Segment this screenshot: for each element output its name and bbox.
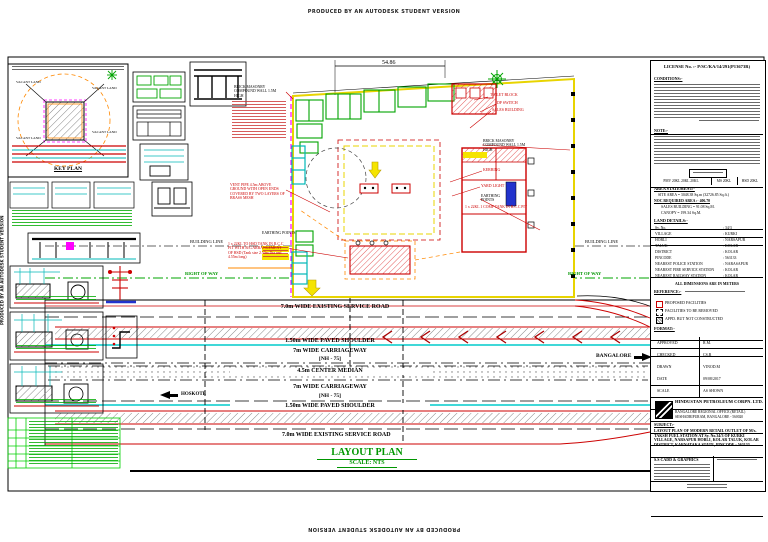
legend-item-removed: FACILITIES TO BE REMOVED [665, 309, 718, 313]
legend-item-proposed: PROPOSED FACILITIES [665, 301, 706, 305]
ann-hsd-tank: 1 x 22KL TO HSD TANK IN R.C.C PIT WITH B… [228, 242, 286, 259]
dims-note: ALL DIMENSIONS ARE IN METERS [651, 282, 763, 286]
drawing-sheet: PRODUCED BY AN AUTODESK STUDENT VERSION … [0, 0, 768, 542]
ann-ms-tank: 1 x 22KL 1 COMP TANK IN R.C.C PIT [465, 205, 527, 209]
tank1-caption [16, 296, 96, 301]
key-plan-caption: KEY PLAN [38, 166, 98, 172]
format-row-label-0: APPROVED [657, 341, 678, 345]
ann-dp-switch: DP SWITCH [497, 101, 518, 105]
paved-shoulder-label-bottom: 1.50m WIDE PAVED SHOULDER [230, 403, 430, 410]
vacant-land-label-4: VACANT LAND [92, 130, 117, 134]
format-row-value-3: 09/08/2017 [703, 377, 721, 381]
hoskote-label: HOSKOTE [181, 392, 206, 398]
ann-yard-light: YARD LIGHT [481, 184, 504, 188]
electrical-note-red [232, 101, 286, 139]
land-row-label-1: VILLAGE [655, 232, 671, 236]
ann-toilet: TOILET BLOCK [490, 93, 518, 97]
vent-mast-detail [109, 266, 132, 300]
service-road-label-top: 7.0m WIDE EXISTING SERVICE ROAD [235, 304, 435, 311]
nh-label-bottom: [NH - 75] [230, 393, 430, 399]
tank2-caption [16, 345, 96, 350]
right-of-way-right: RIGHT OF WAY [568, 271, 601, 276]
format-row-value-2: VINOD.M [703, 365, 720, 369]
ann-vent: VENT PIPE 4.5m ABOVE GROUND WITH OPEN EN… [230, 183, 286, 200]
legend-item-appd: APPD. BUT NOT CONSTRUCTED [665, 317, 723, 321]
ann-sales-building: SALES BUILDING [492, 108, 524, 112]
note-text [654, 136, 760, 164]
service-road-label-bottom: 7.0m WIDE EXISTING SERVICE ROAD [282, 432, 391, 439]
land-row-value-4: : KOLAR [723, 250, 738, 254]
detail-notes-green [12, 210, 132, 226]
land-details-heading: LAND DETAILS:- [654, 219, 688, 224]
land-row-label-7: NEAREST FIRE SERVICE STATION [655, 268, 714, 272]
paved-shoulder-label-top: 1.50m WIDE PAVED SHOULDER [230, 338, 430, 345]
sheet-divider [130, 470, 650, 472]
land-row-label-8: NEAREST RAILWAY STATION [655, 274, 706, 278]
building-line-left: BUILDING LINE [190, 239, 223, 244]
reference-heading: REFERENCE:- [654, 290, 681, 295]
conditions-text [654, 84, 760, 118]
title-block: LICENSE No. :- P/SC/KA/14/291(P13673R) C… [650, 60, 766, 492]
tank-cell-3: HSD 20KL [737, 179, 763, 183]
highlight-1 [463, 152, 487, 158]
land-row-value-2: : NARSAPUR [723, 238, 745, 242]
subject-heading: SUBJECT:- [654, 423, 674, 428]
bangalore-label: BANGALORE [596, 353, 631, 359]
ann-kerbing: KERBING [483, 168, 500, 172]
building-line-right: BUILDING LINE [585, 239, 618, 244]
reference-text [685, 291, 745, 294]
area-statement-heading: AREA STATEMENT:- [654, 187, 695, 192]
land-row-value-5: : 563133 [723, 256, 736, 260]
vacant-land-label-3: VACANT LAND [16, 136, 41, 140]
vacant-land-label-1: VACANT LAND [16, 80, 41, 84]
layout-plan-scale: SCALE: NTS [337, 460, 397, 468]
toilet-block [452, 84, 496, 114]
format-row-label-4: SCALE [657, 389, 669, 393]
layout-plan-title: LAYOUT PLAN [317, 447, 417, 460]
canopy-area: CANOPY = 199.34 Sq.M. [661, 211, 701, 215]
company-name: HINDUSTAN PETROLEUM CORPN. LTD. [675, 399, 763, 404]
noc-area-value: NOC REQUIRED AREA :- 406.70 [654, 199, 710, 203]
land-row-value-3: : KOLAR [723, 244, 738, 248]
ann-wall-left: BRICK MASONRY COMPOUND WALL 1.5M HIGH [234, 85, 286, 98]
consultant-address [654, 464, 710, 480]
company-address: SESHADRIPURAM, BANGALORE - 560020 [675, 415, 743, 419]
company-office: BANGALORE REGIONAL OFFICE (RETAIL) [675, 410, 745, 414]
land-row-label-6: NEAREST POLICE STATION [655, 262, 703, 266]
consultant-name: S.S CADD & GRAPHICS [654, 458, 698, 463]
site-area-value: SITE AREA = 3048.38 Sq.m (32726.85 Sq.ft… [658, 193, 729, 197]
footer-text [687, 484, 727, 489]
format-row-label-3: DATE [657, 377, 667, 381]
format-row-value-0: R.M. [703, 341, 711, 345]
tank3-caption [16, 399, 96, 404]
format-heading: FORMAT:- [654, 327, 675, 332]
carriageway-label-top: 7m WIDE CARRIAGEWAY [230, 348, 430, 355]
ann-earthing-right: EARTHING POINTS [481, 194, 511, 203]
revision-box-text [717, 459, 757, 462]
land-row-value-0: : 34/3 [723, 226, 732, 230]
land-row-value-1: : KURKI [723, 232, 737, 236]
vacant-land-label-2: VACANT LAND [92, 86, 117, 90]
land-row-value-8: : KOLAR [723, 274, 738, 278]
legend-symbol-removed [656, 309, 663, 316]
land-row-value-7: : KOLAR [723, 268, 738, 272]
earthing-points-left: EARTHING POINTS [262, 231, 295, 235]
subject-text: LAYOUT PLAN OF MODERN RETAIL OUTLET OF M… [654, 429, 761, 447]
hpcl-logo [655, 401, 673, 419]
format-row-value-4: AS SHOWN [703, 389, 723, 393]
tank-cell-1: PMV 20KL 20KL 20KL [651, 179, 711, 183]
format-row-label-1: CHECKED [657, 353, 675, 357]
land-row-value-6: : NARASAPUR [723, 262, 748, 266]
authority-signature-line [699, 120, 759, 123]
note-heading: NOTE:- [654, 129, 668, 134]
land-row-label-3: TALUK [655, 244, 668, 248]
median-label: 4.5m CENTER MEDIAN [230, 368, 430, 375]
tank-cell-2: MS 20KL [711, 179, 737, 183]
land-row-label-5: PINCODE [655, 256, 671, 260]
license-number: LICENSE No. :- P/SC/KA/14/291(P13673R) [652, 64, 762, 69]
legend-symbol-appd [656, 317, 663, 324]
carriageway-label-bottom: 7m WIDE CARRIAGEWAY [230, 384, 430, 391]
land-row-label-2: HOBLI [655, 238, 667, 242]
nh-label-top: [NH - 75] [230, 356, 430, 362]
format-row-label-2: DRAWN [657, 365, 671, 369]
conditions-heading: CONDITIONS:- [654, 77, 682, 82]
land-row-label-4: DISTRICT [655, 250, 672, 254]
ann-wall-right: BRICK MASONRY COMPOUND WALL 1.5M HIGH [483, 139, 529, 152]
sales-building-area: SALES BUILDING = 91.08 Sq.M. [661, 205, 715, 209]
format-row-value-1: CS.R [703, 353, 711, 357]
dim-top-label: 54.86 [382, 60, 396, 66]
right-of-way-left: RIGHT OF WAY [185, 271, 218, 276]
legend-symbol-proposed [656, 301, 663, 308]
abbrev-table-text [29, 421, 118, 465]
tankage-box [689, 169, 727, 178]
hoskote-arrow-icon [160, 391, 178, 399]
key-plan-title-text [12, 66, 124, 70]
land-row-label-0: Sy. No. [655, 226, 666, 230]
